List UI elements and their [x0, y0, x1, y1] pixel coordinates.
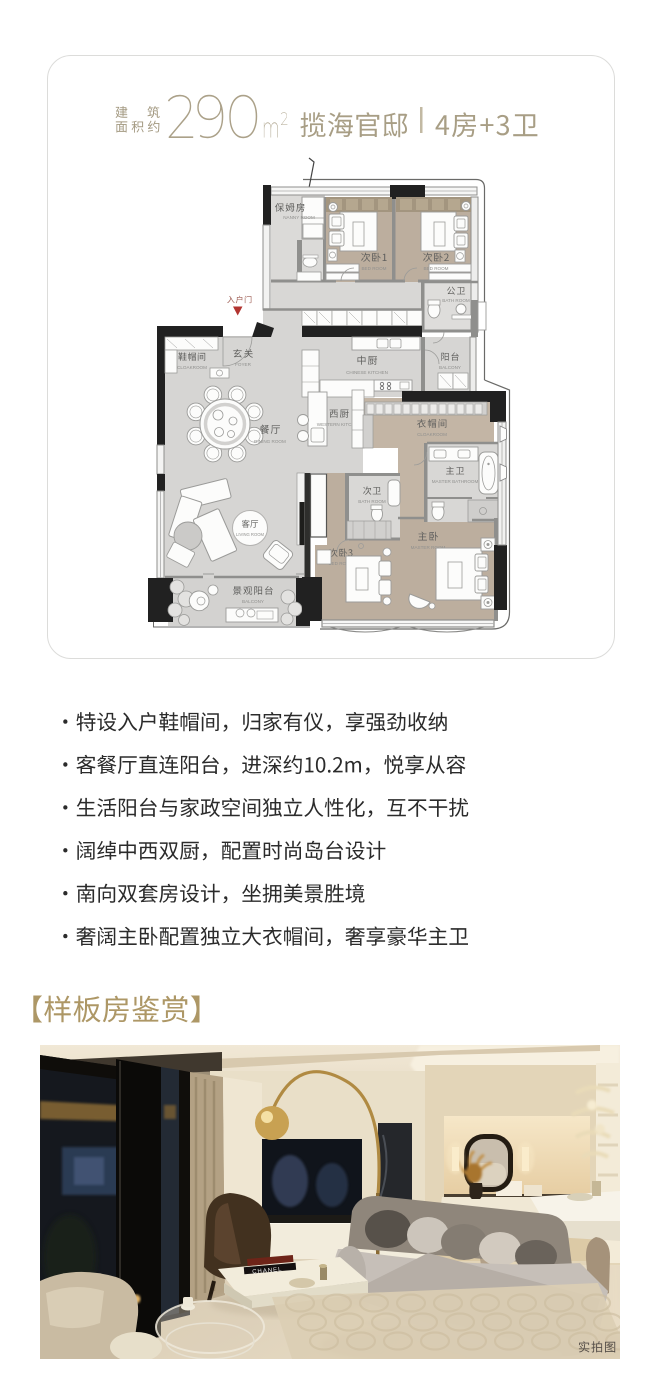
svg-text:BED ROOM: BED ROOM — [423, 266, 448, 271]
svg-text:BALCONY: BALCONY — [242, 599, 264, 604]
svg-text:CLOAKROOM: CLOAKROOM — [417, 432, 447, 437]
svg-text:MASTER BATHROOM: MASTER BATHROOM — [432, 479, 479, 484]
svg-text:CHINESE KITCHEN: CHINESE KITCHEN — [346, 370, 388, 375]
svg-text:FOYER: FOYER — [235, 362, 252, 367]
svg-text:LIVING ROOM: LIVING ROOM — [236, 532, 264, 537]
svg-text:BALCONY: BALCONY — [439, 365, 461, 370]
svg-text:NANNY ROOM: NANNY ROOM — [283, 215, 315, 220]
svg-text:CLOAKROOM: CLOAKROOM — [177, 365, 207, 370]
svg-text:BED ROOM: BED ROOM — [361, 266, 386, 271]
svg-text:BATH ROOM: BATH ROOM — [442, 298, 470, 303]
svg-text:DINING ROOM: DINING ROOM — [254, 439, 286, 444]
svg-text:BATH ROOM: BATH ROOM — [358, 499, 386, 504]
